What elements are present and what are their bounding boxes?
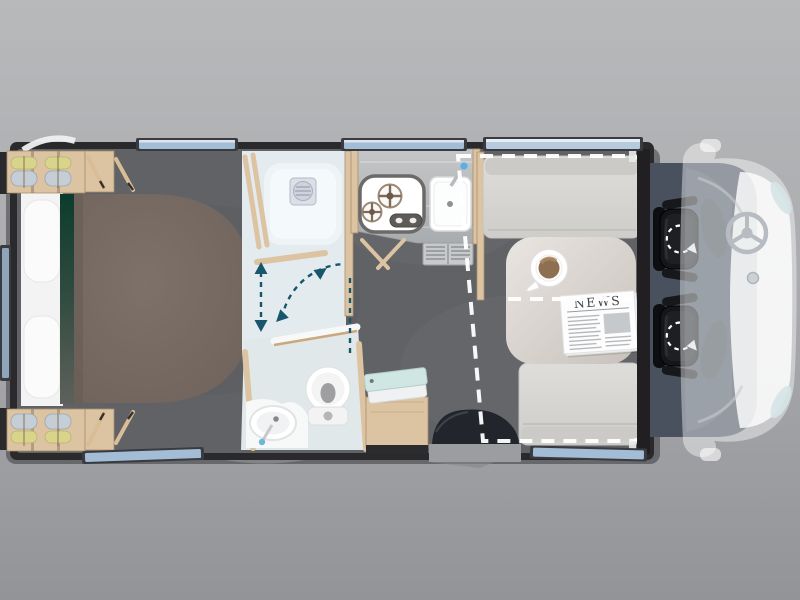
counter-wood-left <box>351 149 358 233</box>
bathroom <box>241 151 366 450</box>
floorplan-canvas: NEWS <box>0 0 800 600</box>
entry-door-opening <box>429 444 521 462</box>
bench-backrest <box>485 158 639 175</box>
sink-drain <box>273 416 279 422</box>
pillow-top <box>24 200 60 282</box>
window-top-rear <box>136 138 238 151</box>
vanity-sink <box>246 399 308 448</box>
gear-knob <box>748 273 759 284</box>
window-top-dinette <box>483 137 643 151</box>
motorhome-floorplan: NEWS <box>0 0 800 600</box>
faucet-knob <box>460 162 467 169</box>
dinette-bench-top <box>483 156 641 238</box>
windshield <box>685 168 733 432</box>
toilet <box>306 367 350 425</box>
hob-knob <box>410 218 417 224</box>
window-top-kitchen <box>341 138 467 151</box>
dinette-bench-bottom <box>519 363 641 445</box>
wardrobe-bottom <box>7 409 85 451</box>
hob-controls <box>390 214 422 227</box>
newspaper-photo <box>603 312 630 334</box>
hob-knob <box>396 218 403 224</box>
burner-small <box>363 203 382 222</box>
bulkhead-cap-top <box>629 150 636 162</box>
bench-front-band <box>521 427 639 441</box>
gas-hob <box>360 176 424 232</box>
window-rear-left <box>0 245 11 381</box>
duvet-fold <box>74 194 83 403</box>
burner-large <box>379 185 402 208</box>
green-throw <box>60 194 74 404</box>
bed-duvet <box>74 194 254 403</box>
shower-drain <box>290 178 316 205</box>
pillow-bottom <box>24 316 60 398</box>
bulkhead <box>637 149 650 454</box>
faucet-knob <box>259 439 265 445</box>
towel-cabinet <box>364 367 429 454</box>
ghost-vehicle-front <box>680 139 797 461</box>
steering-wheel <box>728 214 766 252</box>
sink-drain <box>447 201 453 207</box>
wardrobe-top <box>7 151 85 193</box>
cab <box>629 139 797 461</box>
